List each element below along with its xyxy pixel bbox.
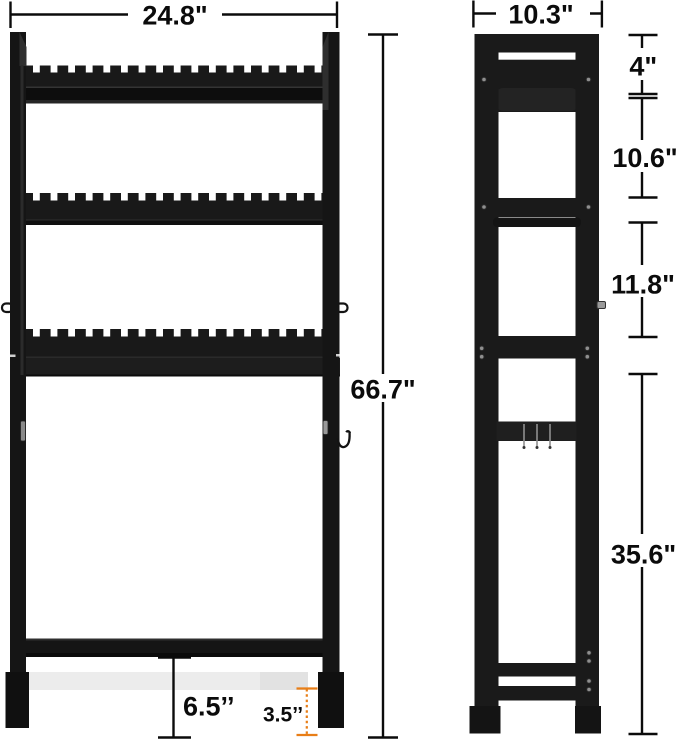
svg-text:11.8": 11.8" xyxy=(611,270,675,300)
svg-text:24.8": 24.8" xyxy=(142,1,207,31)
svg-text:35.6": 35.6" xyxy=(611,540,676,570)
svg-text:10.3": 10.3" xyxy=(508,0,573,30)
svg-text:3.5’’: 3.5’’ xyxy=(263,704,303,727)
svg-text:10.6": 10.6" xyxy=(612,143,677,173)
svg-text:66.7": 66.7" xyxy=(350,375,415,405)
svg-text:4": 4" xyxy=(629,52,657,82)
svg-text:6.5’’: 6.5’’ xyxy=(183,692,235,722)
